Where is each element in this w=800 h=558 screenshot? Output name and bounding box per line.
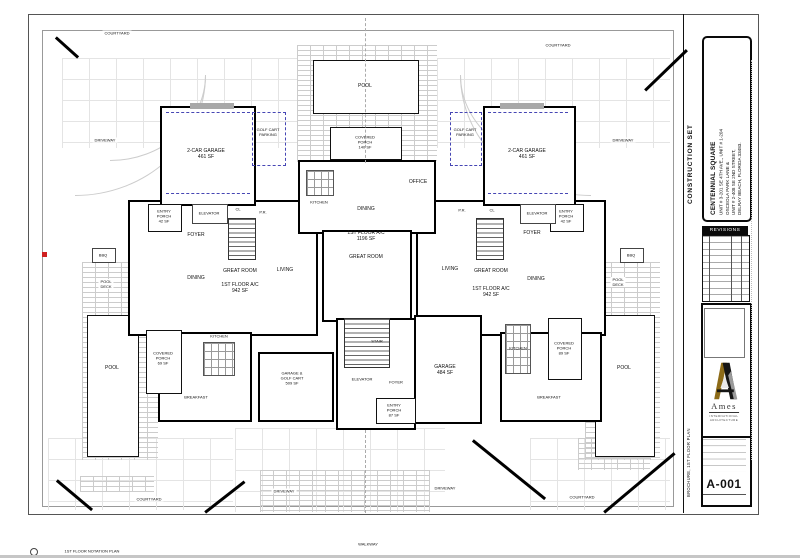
sheet-info-rows (703, 439, 746, 472)
center-great-room-label: GREAT ROOM (349, 254, 383, 260)
right-ac-label: 1ST FLOOR A/C 942 SF (472, 286, 509, 299)
center-foyer-label: FOYER (389, 380, 403, 385)
center-garage-golf-label: GARAGE & GOLF CART 509 SF (281, 371, 304, 386)
left-garage-dashed-line2 (166, 193, 250, 194)
center-garage-label: GARAGE 484 SF (434, 364, 455, 377)
center-stair-label: STAIR (371, 339, 382, 344)
right-garage-label: 2-CAR GARAGE 461 SF (508, 148, 546, 161)
courtyard-label-bottom-left: COURTYARD (135, 497, 164, 502)
left-garage-dashed-line (166, 112, 250, 113)
project-name: CENTENNIAL SQUARE (710, 43, 719, 215)
left-breakfast-label: BREAKFAST (184, 395, 208, 400)
center-dining-label: DINING (357, 206, 375, 212)
left-garage-door (190, 103, 234, 109)
left-foyer-label: FOYER (187, 232, 204, 238)
right-great-room-label: GREAT ROOM (474, 268, 508, 274)
left-kitchen-label: KITCHEN (210, 334, 228, 339)
center-kitchen-island (306, 170, 334, 196)
left-golf-cart-zone (252, 112, 286, 166)
center-office-label: OFFICE (409, 179, 427, 185)
driveway-label-bottom-center: DRIVEWAY (433, 486, 458, 491)
left-stair (228, 218, 256, 260)
right-garage-door (500, 103, 544, 109)
right-golf-cart-zone (450, 112, 482, 166)
project-title-box: CENTENNIAL SQUARE UNIT # 3-201 SE 4TH AV… (702, 36, 752, 222)
right-living-label: LIVING (442, 266, 458, 272)
copyright-microtext-line (751, 60, 752, 460)
right-stair (476, 218, 504, 260)
pool-deck-left-label: POOL DECK (98, 279, 113, 289)
pool-right (595, 315, 655, 457)
ames-firm-name: Ames (709, 401, 739, 413)
revisions-col-line-3 (741, 236, 742, 301)
right-entry-porch-label: ENTRY PORCH 42 SF (559, 209, 573, 224)
right-powder-room-label: P.R. (458, 208, 465, 213)
left-living-label: LIVING (277, 267, 293, 273)
ames-logo-icon (710, 360, 738, 402)
sheet-page: COURTYARD COURTYARD COURTYARD COURTYARD … (0, 0, 800, 558)
left-great-room-label: GREAT ROOM (223, 268, 257, 274)
center-unit-mid-walls (322, 230, 412, 322)
left-kitchen-island (203, 342, 235, 376)
left-covered-porch-label: COVERED PORCH 69 SF (153, 351, 173, 366)
pool-deck-right-label: POOL DECK (610, 277, 625, 287)
courtyard-label-bottom-right: COURTYARD (568, 495, 597, 500)
sheet-info-divider (703, 494, 746, 495)
drawing-title-label: BROCHURE, 1ST FLOOR PLAN (686, 416, 698, 510)
right-foyer-label: FOYER (523, 230, 540, 236)
bbq-left-label: BBQ (99, 253, 107, 258)
project-address-line4: DELRAY BEACH, FLORIDA 33483. (738, 43, 744, 215)
center-stair (344, 318, 390, 368)
left-ac-label: 1ST FLOOR A/C 942 SF (221, 282, 258, 295)
titleblock-divider (683, 14, 684, 513)
left-garage-label: 2-CAR GARAGE 461 SF (187, 148, 225, 161)
center-elevator-label: ELEVATOR (352, 377, 373, 382)
right-golf-cart-label: GOLF CART PARKING (454, 127, 477, 137)
right-breakfast-label: BREAKFAST (537, 395, 561, 400)
left-dining-label: DINING (187, 275, 205, 281)
red-marker-left-boundary (42, 252, 47, 257)
pool-top-label: POOL (358, 83, 372, 89)
right-closet-label: CL (489, 208, 494, 213)
construction-set-label: CONSTRUCTION SET (687, 116, 700, 212)
driveway-label-bottom-left: DRIVEWAY (272, 489, 297, 494)
left-closet-label: CL (235, 207, 240, 212)
seal-area (704, 308, 745, 358)
revisions-col-line-2 (731, 236, 732, 301)
walkway-label: WALKWAY (358, 542, 378, 547)
left-powder-room-label: P.R. (259, 210, 266, 215)
left-entry-porch-label: ENTRY PORCH 42 SF (157, 209, 171, 224)
pool-right-label: POOL (617, 365, 631, 371)
center-covered-porch-label: COVERED PORCH 140 SF (355, 135, 375, 150)
center-garage-golf-walls (258, 352, 334, 422)
sheet-number: A-001 (706, 477, 741, 491)
revisions-header: REVISIONS (702, 226, 748, 235)
right-elevator-label: ELEVATOR (527, 211, 548, 216)
left-golf-cart-label: GOLF CART PARKING (257, 127, 280, 137)
project-title-text: CENTENNIAL SQUARE UNIT # 3-201 SE 4TH AV… (710, 43, 743, 215)
center-kitchen-label: KITCHEN (310, 200, 328, 205)
notation-callout-label: 1ST FLOOR NOTATION PLAN (65, 549, 120, 554)
right-covered-porch-label: COVERED PORCH 89 SF (554, 341, 574, 356)
center-ac-label: 1ST FLOOR A/C 1196 SF (347, 230, 384, 243)
pool-left-label: POOL (105, 365, 119, 371)
driveway-label-left: DRIVEWAY (93, 138, 118, 143)
brick-walk-bottom-left (80, 476, 154, 492)
right-garage-dashed-line (488, 112, 568, 113)
pool-left (87, 315, 139, 457)
revisions-table (702, 235, 750, 302)
center-entry-porch-label: ENTRY PORCH 87 SF (387, 403, 401, 418)
ames-firm-sub2: ARCHITECTURE (710, 418, 738, 422)
centerline-bottom (365, 430, 366, 513)
right-garage-dashed-line2 (488, 193, 568, 194)
courtyard-label-top-left: COURTYARD (103, 31, 132, 36)
right-kitchen-label: KITCHEN (509, 346, 527, 351)
left-elevator-label: ELEVATOR (199, 211, 220, 216)
right-dining-label: DINING (527, 276, 545, 282)
revisions-col-line-1 (709, 236, 710, 301)
driveway-label-right: DRIVEWAY (611, 138, 636, 143)
bbq-right-label: BBQ (627, 253, 635, 258)
courtyard-label-top-right: COURTYARD (544, 43, 573, 48)
